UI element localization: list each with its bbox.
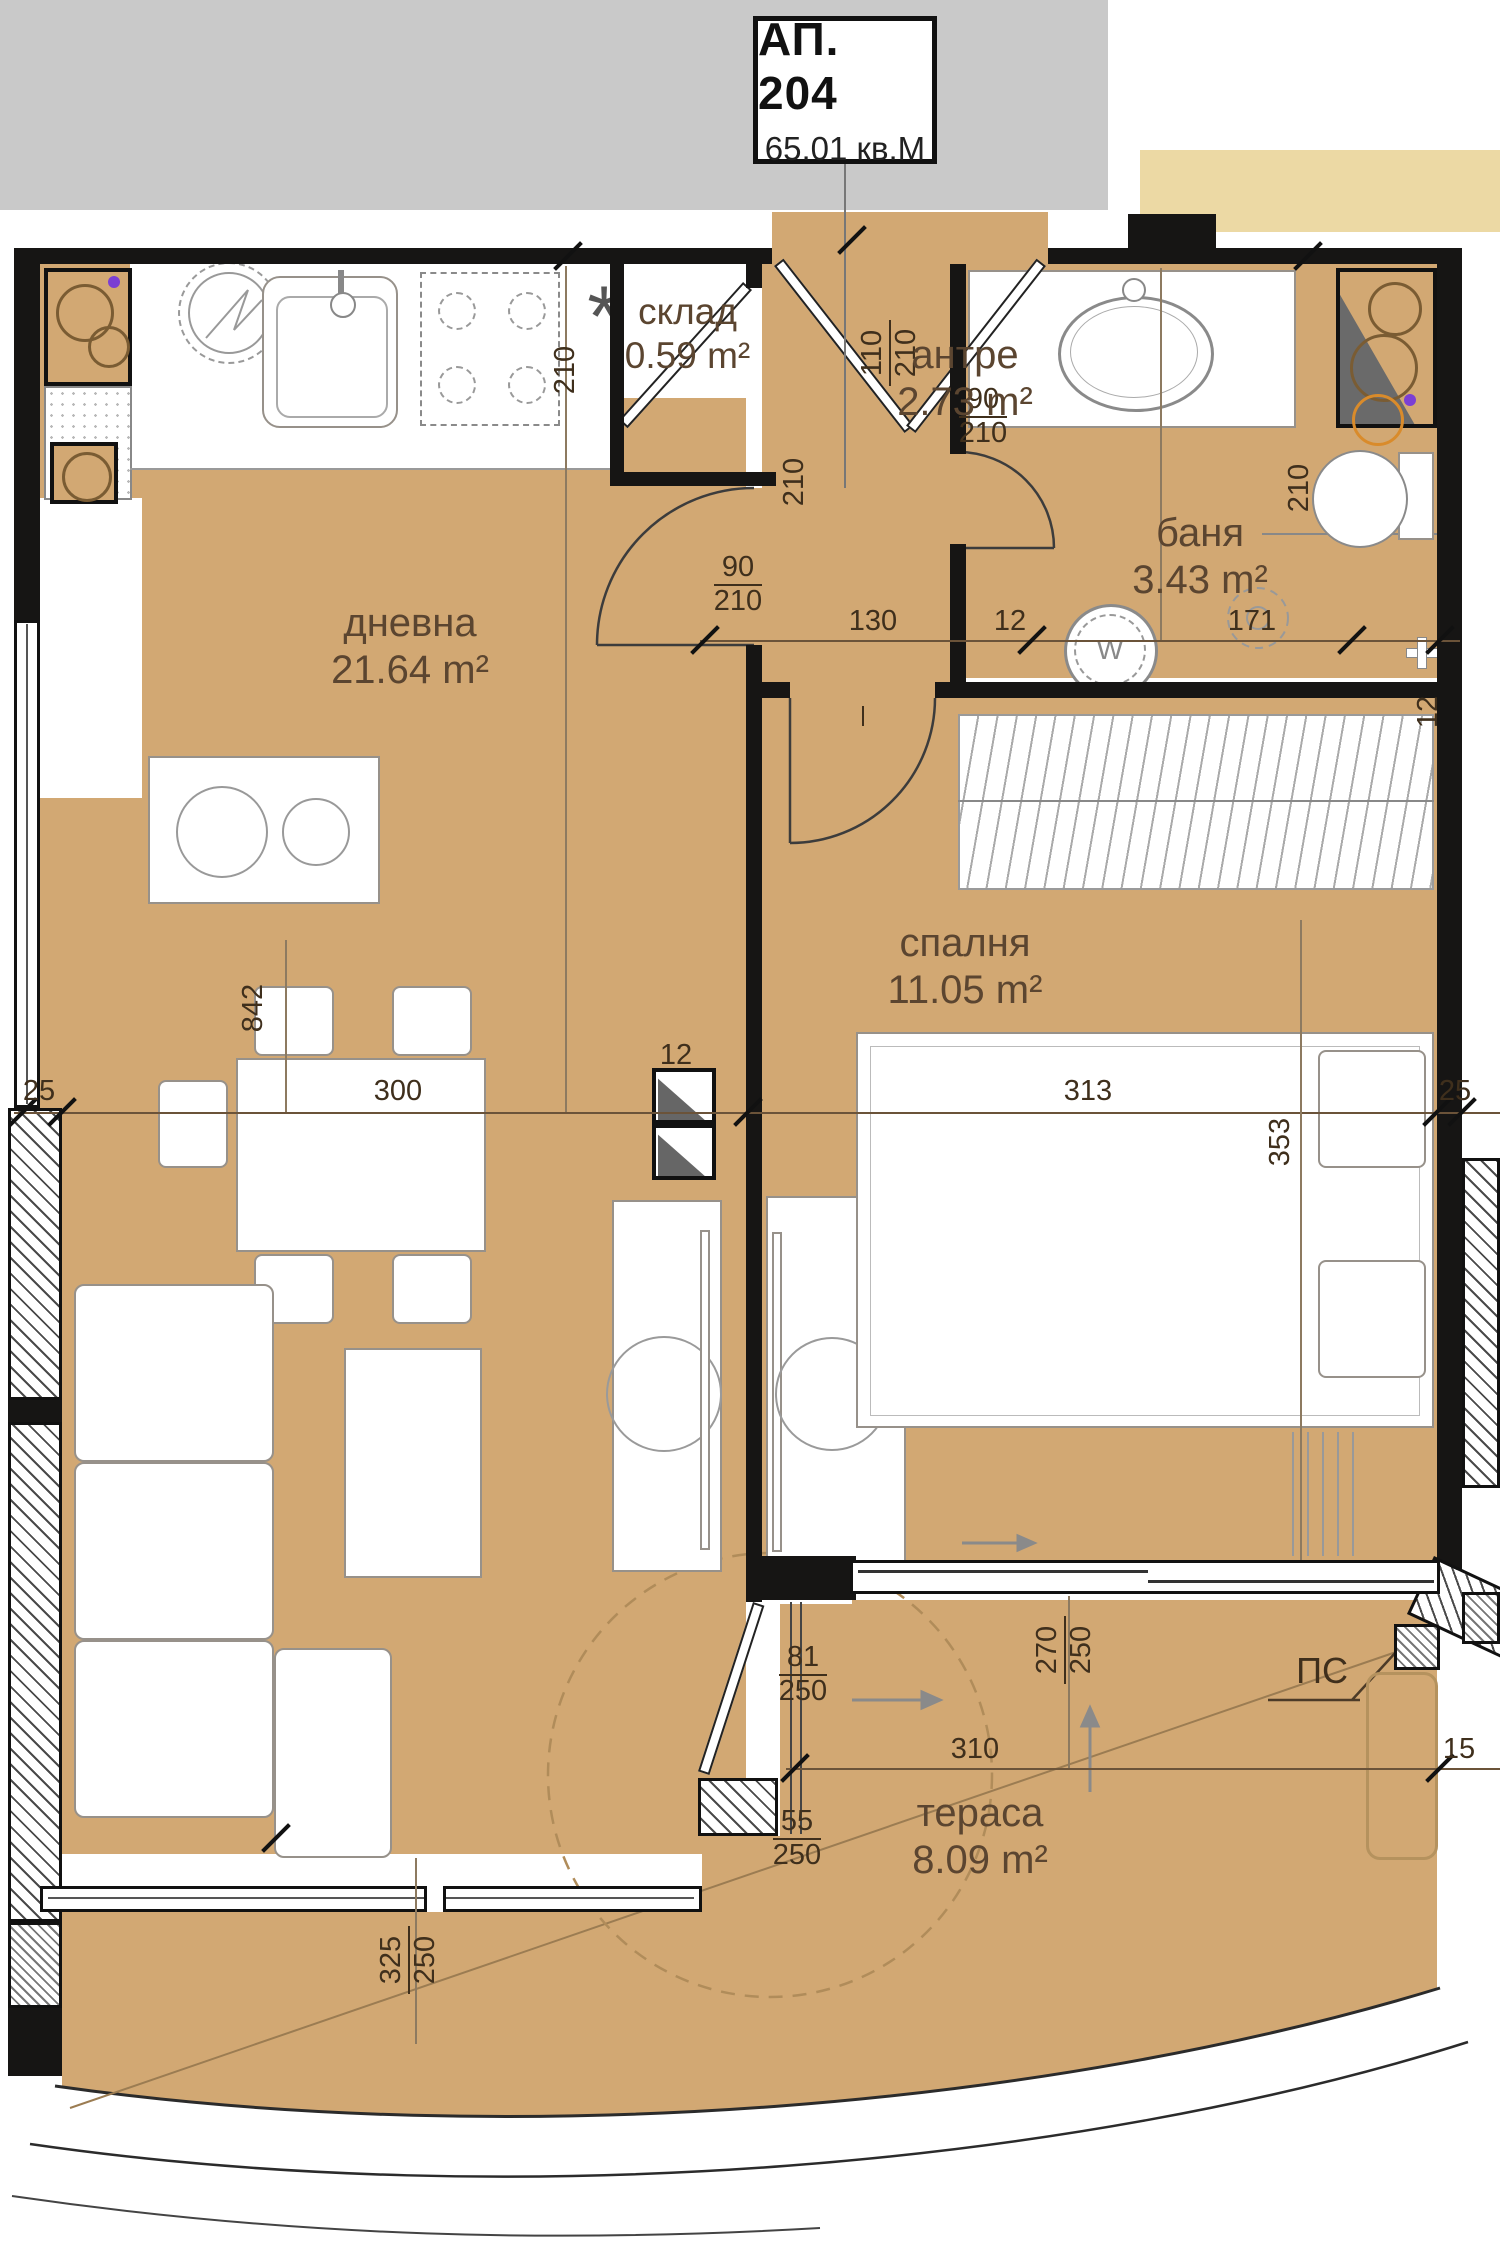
dim-value: 12 [1412,696,1444,728]
dim-value: 171 [1228,605,1276,637]
room-name: баня [1095,510,1305,557]
dim-value: 12 [994,605,1026,637]
dim-bedroom-door [862,660,942,772]
dim-terrace-side: 325 250 [376,1894,456,2026]
wall-partition-top [746,248,762,288]
label-living: дневна 21.64 m² [315,600,505,694]
terrace-door-glass [790,1602,792,1834]
wall-right [1437,248,1462,1570]
wall-storage-bottom [610,472,776,486]
honeycomb-right-top [1462,1592,1500,1644]
label-storage: склад 0.59 m² [600,290,775,377]
dim-value: 210 [778,458,810,506]
terrace-door-glass [800,1602,802,1834]
dim-12: 12 [988,606,1032,636]
wall-hall-south-left [762,682,790,698]
ext-line-title [844,164,846,488]
dim-value: 250 [779,1676,827,1708]
bedroom-slider-pane-1 [858,1570,1148,1573]
dim-value [862,706,864,726]
dim-value: 842 [237,984,269,1032]
apartment-area: 65.01 кв.М [765,130,925,168]
dim-value: 15 [1443,1733,1475,1765]
room-area: 3.43 m² [1095,557,1305,604]
drain-label: ПС [1282,1652,1362,1690]
wall-left-joint [8,1400,62,1422]
label-entry: антре 2.73 m² [870,332,1060,426]
dim-value: 210 [1283,464,1315,512]
hatch-wall-left-1 [8,1108,62,1400]
wall-partition [746,645,762,1602]
dim-353: 353 [1265,1087,1299,1197]
hatch-wall-right-outer [1462,1158,1500,1488]
dim-value: 270 [1032,1616,1066,1684]
label-bedroom: спалня 11.05 m² [855,920,1075,1014]
dim-line-terrace [786,1768,1500,1770]
dim-value: 325 [376,1926,410,1994]
room-name: склад [600,290,775,334]
dim-terrace-window2: 55 250 [760,1806,834,1872]
dim-value: 130 [849,605,897,637]
bedroom-sliding-door [850,1560,1440,1594]
label-bathroom: баня 3.43 m² [1095,510,1305,604]
wall-bedroom-slider-stub [746,1556,856,1600]
room-name: тераса [875,1790,1085,1837]
ext-line-living [285,940,287,1112]
dim-value: 12 [660,1039,692,1071]
dim-842: 842 [238,948,272,1068]
wall-top-left [14,248,772,264]
dim-15: 15 [1436,1734,1482,1764]
dim-313: 313 [1056,1076,1120,1106]
wall-pillar [1128,214,1216,248]
ext-line-bedroom [1300,920,1302,1560]
title-block: АП. 204 65.01 кв.М [753,16,937,164]
dim-living-door: 90 210 [699,552,777,618]
wall-top-right [1048,248,1462,264]
honeycomb-wall-left [8,1922,62,2008]
dim-value: 310 [951,1733,999,1765]
hatch-wall-left-2 [8,1422,62,1922]
wall-left-end [8,2008,62,2076]
label-terrace: тераса 8.09 m² [875,1790,1085,1884]
room-area: 2.73 m² [870,379,1060,426]
dim-terrace-window: 81 250 [766,1642,840,1708]
room-area: 11.05 m² [855,967,1075,1014]
apartment-number: АП. 204 [758,12,932,120]
room-area: 0.59 m² [600,334,775,378]
boiler-zigzag [206,290,262,338]
dim-hall-210: 210 [779,427,815,537]
room-name: спалня [855,920,1075,967]
dim-value: 210 [714,586,762,618]
dim-bedroom-wall-12: 12 [1413,682,1443,742]
wall-hall-south-right [935,682,1453,698]
dim-value: 25 [1439,1075,1471,1107]
dim-310: 310 [943,1734,1007,1764]
dim-25-left: 25 [14,1076,64,1106]
dim-value: 250 [773,1840,821,1872]
dim-value: 353 [1264,1118,1296,1166]
room-name: антре [870,332,1060,379]
dim-terrace-door: 270 250 [1032,1584,1112,1716]
dim-value: 313 [1064,1075,1112,1107]
dim-kitchen-210: 210 [550,315,586,425]
room-area: 8.09 m² [875,1837,1085,1884]
dim-130: 130 [845,606,901,636]
dim-value: 81 [779,1642,827,1676]
dim-value: 90 [714,552,762,586]
dim-value: 250 [1066,1626,1098,1674]
bedroom-slider-pane-2 [1148,1580,1434,1583]
wall-bath-west-lower [950,544,966,682]
drain-text: ПС [1296,1650,1348,1691]
floor-plan: АП. 204 65.01 кв.М [0,0,1500,2252]
wall-left [14,248,40,620]
dim-25-right: 25 [1430,1076,1480,1106]
room-area: 21.64 m² [315,647,505,694]
dim-partition-12: 12 [654,1040,698,1070]
dim-value: 55 [773,1806,821,1840]
dim-value: 300 [374,1075,422,1107]
room-name: дневна [315,600,505,647]
dim-value: 210 [549,346,581,394]
living-slider-line [48,1897,694,1899]
dim-value: 25 [23,1075,55,1107]
dim-171: 171 [1220,606,1284,636]
window-left-glazing [26,624,28,1104]
bath-door-arc [958,452,1054,548]
living-sliding-window [40,1886,702,1912]
dim-300: 300 [366,1076,430,1106]
dim-value: 250 [410,1936,442,1984]
